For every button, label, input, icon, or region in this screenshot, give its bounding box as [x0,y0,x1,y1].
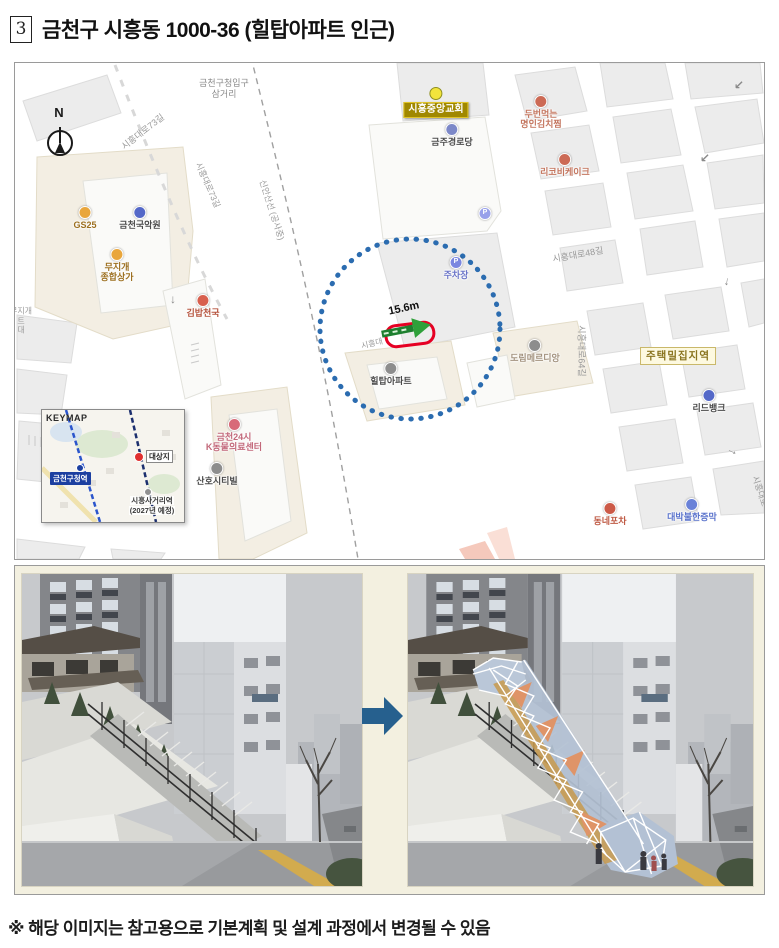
map-poi: P주차장 [444,256,469,280]
poi-dot-icon [446,123,459,136]
poi-label: 대박불한증막 [667,512,717,522]
map-poi: 금천24시K동물의료센터 [206,418,262,453]
map-canvas: GS25금천국악원무지개종합상가김밥천국시흥중앙교회금주경로당두번먹는명인김치찜… [15,63,764,559]
poi-label: 두번먹는명인김치찜 [520,109,561,130]
keymap-station1-dot [77,465,84,472]
one-way-arrow-icon: ↓ [170,292,176,306]
map-poi: 리코비케이크 [540,153,590,177]
map-poi: 주택밀집지역 [640,347,716,365]
poi-dot-icon [604,502,617,515]
poi-dot-icon [197,294,210,307]
map-poi: 김밥천국 [186,294,219,318]
before-photo [22,574,362,886]
keymap-site-dot [135,453,144,462]
location-map-panel: GS25금천국악원무지개종합상가김밥천국시흥중앙교회금주경로당두번먹는명인김치찜… [14,62,765,560]
before-after-photo-panel [14,565,765,895]
keymap-station2-dot [145,489,152,496]
poi-label: 리드뱅크 [692,403,725,413]
map-poi: 힐탑아파트 [370,362,411,386]
poi-label: 시흥중앙교회 [403,102,468,118]
map-road-label: 금천구청입구 삼거리 [199,78,249,100]
poi-label: 김밥천국 [186,308,219,318]
keymap-station1-label: 금천구청역 [50,472,91,485]
poi-label: 금주경로당 [431,137,472,147]
after-photo [408,574,753,886]
poi-dot-icon [529,339,542,352]
map-road-label: 시흥대로64길 [576,325,587,376]
poi-dot-icon [111,248,124,261]
poi-label: 산호시티빌 [196,476,237,486]
one-way-arrow-icon: ↙ [734,78,744,92]
parking-icon: P [479,207,492,220]
poi-dot-icon [228,418,241,431]
map-poi: 동네포차 [593,502,626,526]
poi-label: 리코비케이크 [540,167,590,177]
poi-label: GS25 [73,220,96,230]
parking-icon: P [450,256,463,269]
title-number-box: 3 [10,16,32,43]
map-poi: 산호시티빌 [196,462,237,486]
poi-dot-icon [385,362,398,375]
map-poi: 시흥중앙교회 [403,87,468,118]
footnote: ※ 해당 이미지는 참고용으로 기본계획 및 설계 과정에서 변경될 수 있음 [8,914,490,939]
map-poi: 금천국악원 [119,206,160,230]
keymap-inset: KEYMAP 금천구청역 대상지 시흥사거리역 (2027년 예정) [41,409,185,523]
poi-label: 동네포차 [593,516,626,526]
poi-dot-icon [134,206,147,219]
poi-label: 금천국악원 [119,220,160,230]
transform-arrow-icon [362,692,404,740]
map-poi: 대박불한증막 [667,498,717,522]
poi-label: 금천24시K동물의료센터 [206,432,262,453]
map-road-label: 무지개 트 대 [14,307,32,336]
map-poi: GS25 [73,206,96,230]
poi-label: 주차장 [444,270,469,280]
keymap-site-label: 대상지 [146,450,173,463]
map-poi: P [479,207,492,221]
poi-label: 주택밀집지역 [640,347,716,365]
map-poi: 두번먹는명인김치찜 [520,95,561,130]
yellow-marker-icon [429,87,442,100]
title-text: 금천구 시흥동 1000-36 (힐탑아파트 인근) [42,14,395,44]
poi-label: 무지개종합상가 [100,262,133,283]
poi-dot-icon [211,462,224,475]
poi-dot-icon [559,153,572,166]
map-poi: 금주경로당 [431,123,472,147]
poi-dot-icon [686,498,699,511]
poi-label: 도림메르디앙 [510,353,560,363]
map-poi: 리드뱅크 [692,389,725,413]
poi-dot-icon [535,95,548,108]
poi-dot-icon [78,206,91,219]
keymap-title: KEYMAP [46,413,88,423]
map-poi: 무지개종합상가 [100,248,133,283]
poi-dot-icon [703,389,716,402]
page-title: 3 금천구 시흥동 1000-36 (힐탑아파트 인근) [10,14,395,44]
poi-label: 힐탑아파트 [370,376,411,386]
one-way-arrow-icon: ↙ [700,151,710,165]
map-road-label: N [54,105,63,121]
keymap-station2-label: 시흥사거리역 (2027년 예정) [116,496,185,516]
map-poi: 도림메르디앙 [510,339,560,363]
